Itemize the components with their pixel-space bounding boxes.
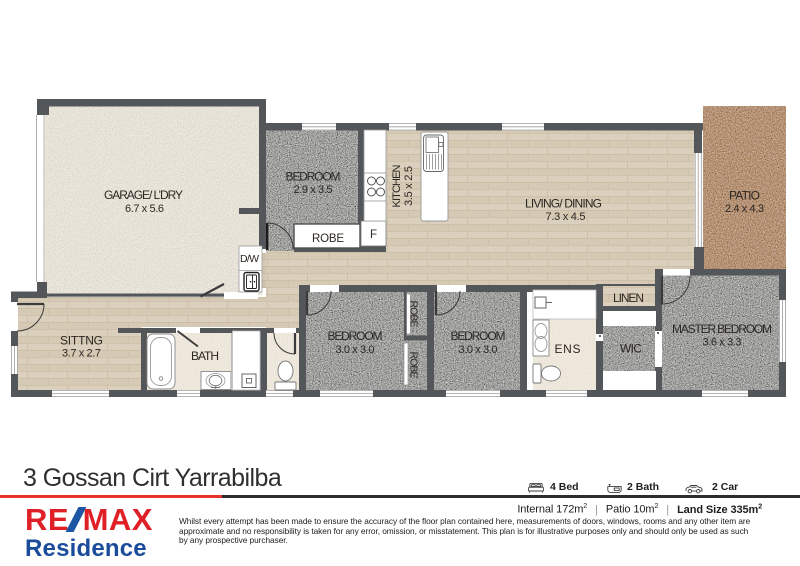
svg-text:MASTER BEDROOM: MASTER BEDROOM: [672, 322, 772, 336]
svg-text:PATIO: PATIO: [729, 189, 760, 203]
svg-text:BEDROOM: BEDROOM: [328, 329, 383, 343]
svg-text:WIC: WIC: [620, 342, 642, 356]
svg-text:SITTNG: SITTNG: [60, 334, 103, 348]
svg-text:7.3 x 4.5: 7.3 x 4.5: [546, 211, 586, 223]
svg-text:3.6 x 3.3: 3.6 x 3.3: [703, 337, 742, 349]
svg-text:KITCHEN3.5 x 2.5: KITCHEN3.5 x 2.5: [391, 164, 415, 207]
svg-text:6.7 x 5.6: 6.7 x 5.6: [125, 203, 164, 215]
svg-text:2.4 x 4.3: 2.4 x 4.3: [725, 203, 764, 215]
svg-text:BEDROOM: BEDROOM: [451, 329, 506, 343]
svg-text:ROBE: ROBE: [312, 233, 344, 245]
svg-text:ROBE: ROBE: [408, 301, 420, 328]
svg-text:LINEN: LINEN: [613, 291, 644, 305]
svg-text:LIVING/ DINING: LIVING/ DINING: [525, 197, 602, 211]
svg-text:3.0 x 3.0: 3.0 x 3.0: [336, 344, 375, 356]
svg-text:ENS: ENS: [555, 342, 581, 356]
svg-text:3.0 x 3.0: 3.0 x 3.0: [459, 344, 498, 356]
svg-text:D/W: D/W: [240, 253, 259, 265]
svg-text:BATH: BATH: [191, 349, 219, 363]
svg-text:BEDROOM: BEDROOM: [286, 170, 341, 184]
svg-text:GARAGE/ L’DRY: GARAGE/ L’DRY: [104, 188, 183, 202]
svg-text:ROBE: ROBE: [408, 352, 420, 379]
svg-text:F: F: [370, 229, 377, 241]
svg-text:2.9 x 3.5: 2.9 x 3.5: [294, 184, 333, 196]
svg-text:3.7 x 2.7: 3.7 x 2.7: [62, 348, 101, 360]
